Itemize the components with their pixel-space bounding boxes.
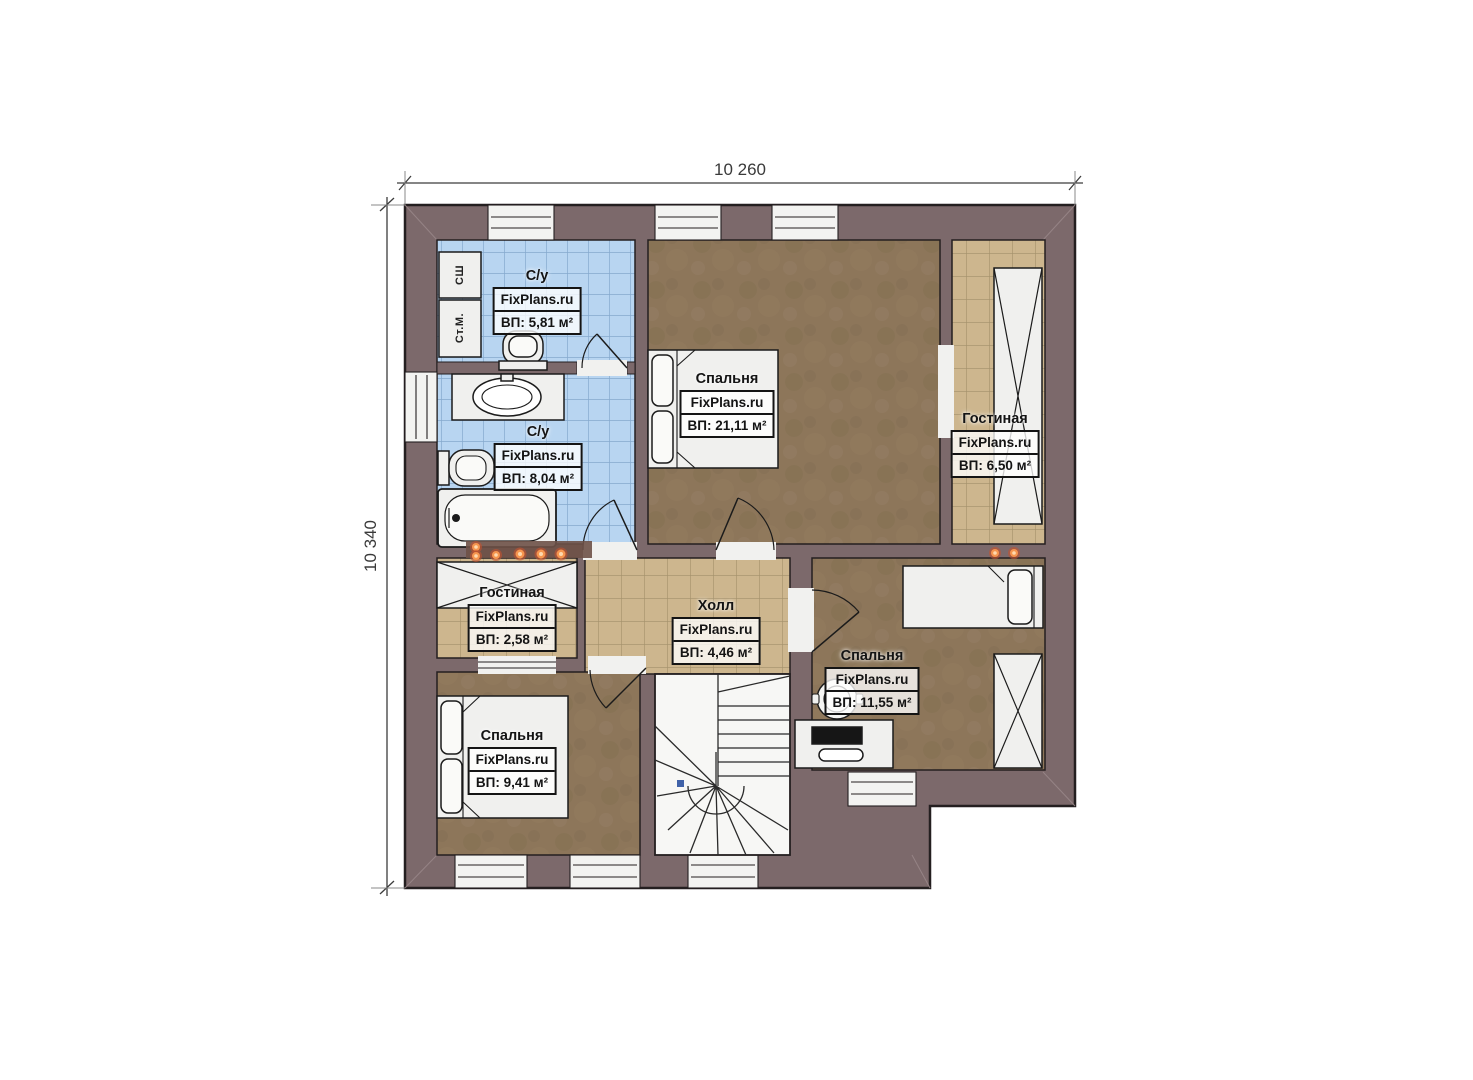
dimension-label-width: 10 260: [714, 160, 766, 180]
staircase: [655, 674, 790, 855]
toilet-top: [499, 331, 547, 370]
floor-plan-canvas: 10 260 10 340 СШ Ст.М. С/у FixPlans.ru В…: [0, 0, 1473, 1080]
double-bed-bottom: [437, 696, 568, 818]
window-left: [405, 372, 437, 442]
opening-bathroom-divider: [577, 360, 627, 376]
window-top-1: [488, 205, 554, 240]
window-top-3: [772, 205, 838, 240]
toilet-bottom: [438, 450, 494, 486]
opening-bedroom-right: [788, 588, 814, 652]
window-top-2: [655, 205, 721, 240]
closet-label-dryer: СШ: [454, 265, 466, 285]
window-bottom-3: [688, 855, 758, 888]
closet-label-washer: Ст.М.: [454, 313, 466, 343]
opening-living-right: [938, 345, 954, 438]
window-bottom-2: [570, 855, 640, 888]
wardrobe-bedroom-right: [994, 654, 1042, 768]
keyboard: [819, 749, 863, 761]
opening-living-left: [478, 656, 556, 674]
double-bed-top: [648, 350, 778, 468]
bathtub: [438, 489, 556, 547]
opening-bedroom-bottom: [588, 656, 646, 674]
dimension-label-height: 10 340: [361, 520, 381, 572]
window-bottom-1: [455, 855, 527, 888]
stair-marker: [677, 780, 684, 787]
single-bed: [903, 566, 1043, 628]
sink-counter: [452, 374, 564, 420]
opening-bedroom-top: [716, 542, 776, 560]
wardrobe-living-left: [437, 562, 577, 608]
wardrobe-living-right: [994, 268, 1042, 524]
window-bottom-right: [848, 772, 916, 806]
computer-monitor: [812, 727, 862, 744]
desk: [795, 720, 893, 768]
